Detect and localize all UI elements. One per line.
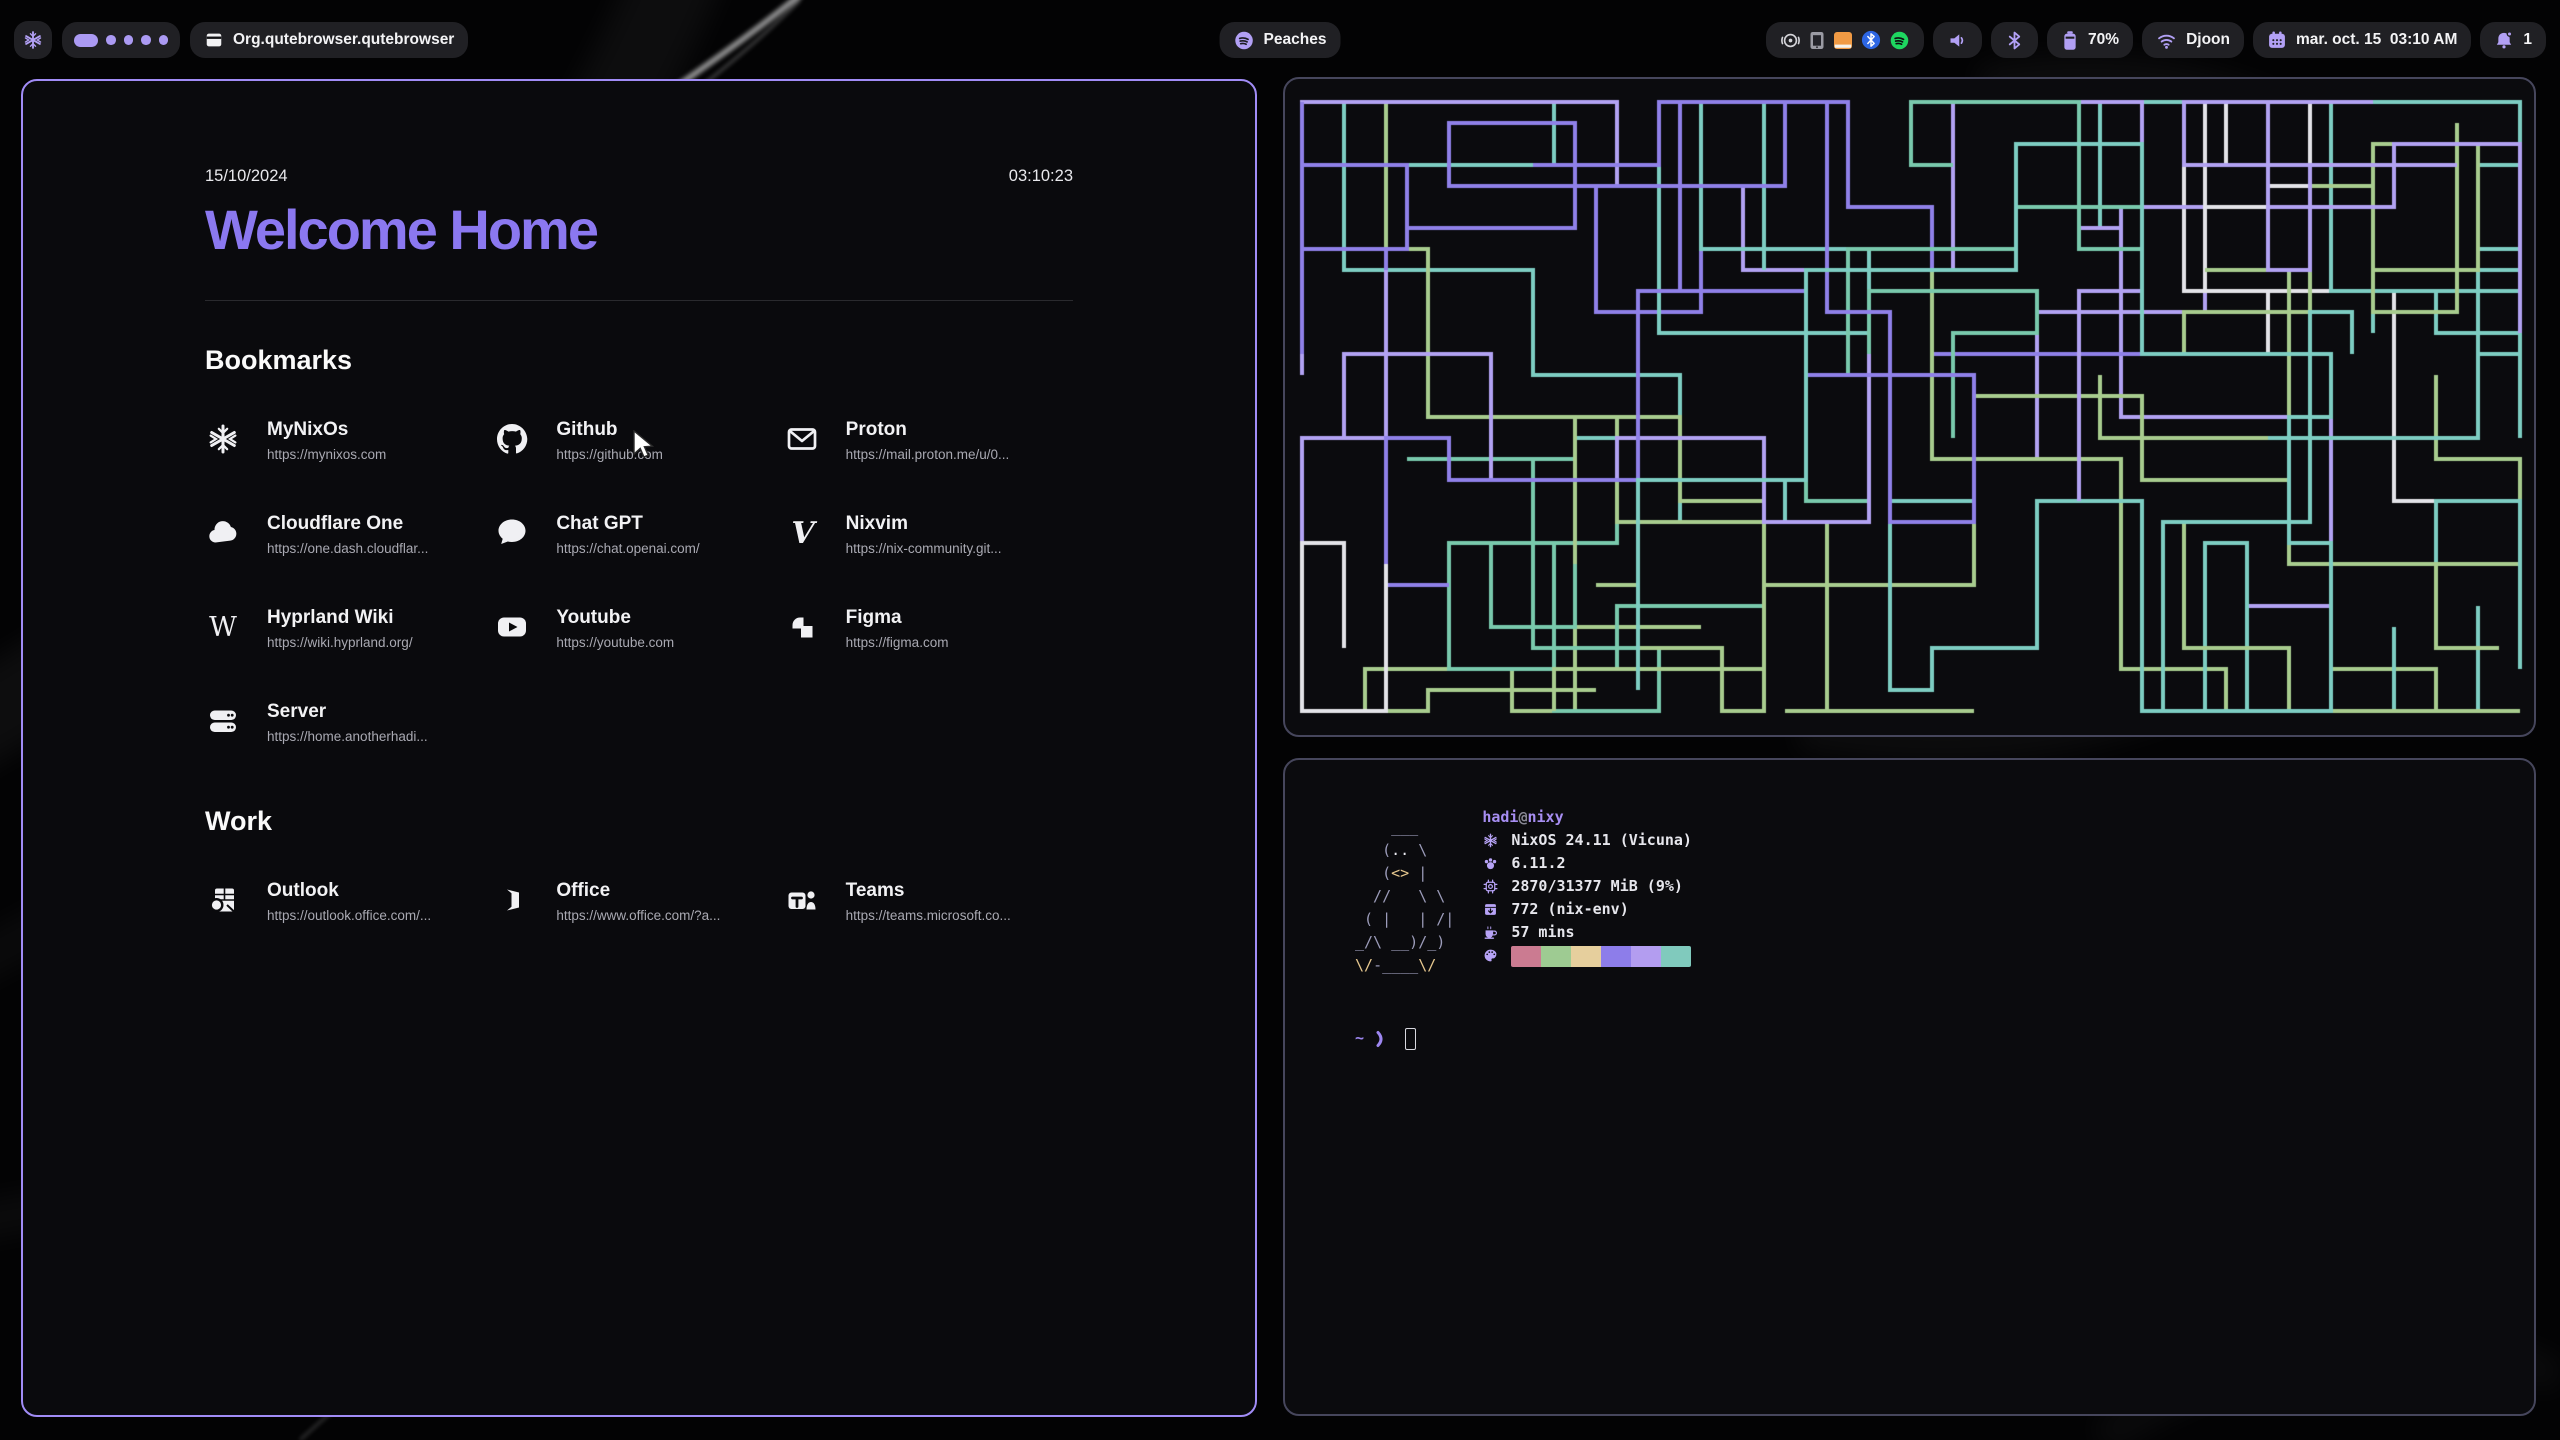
nixvim-icon: V [784,515,820,551]
clock-chip[interactable]: mar. oct. 15 03:10 AM [2253,22,2471,58]
bookmark-item[interactable]: MyNixOshttps://mynixos.com [205,418,494,474]
svg-text:W: W [209,612,237,643]
workspace-dot[interactable] [159,35,169,45]
fetch-value: 2870/31377 MiB (9%) [1511,875,1683,898]
cloud-icon [205,515,241,551]
bookmark-item[interactable]: Protonhttps://mail.proton.me/u/0... [784,418,1073,474]
ascii-line: ( | | /| [1355,908,1454,931]
bookmark-url: https://teams.microsoft.co... [846,908,1011,923]
packages-icon [1482,901,1499,918]
bookmark-item[interactable]: Cloudflare Onehttps://one.dash.cloudflar… [205,512,494,568]
notification-count: 1 [2523,31,2532,49]
fetch-row-kernel: 6.11.2 [1482,852,1692,875]
status-bar: Org.qutebrowser.qutebrowser Peaches [0,21,2560,59]
mail-icon [784,421,820,457]
bookmark-text: Serverhttps://home.anotherhadi... [267,700,428,744]
bookmark-title: Proton [846,418,1010,442]
nix-icon [205,421,241,457]
nix-icon [1482,832,1499,849]
bookmark-text: Outlookhttps://outlook.office.com/... [267,879,431,923]
bookmark-url: https://figma.com [846,635,949,650]
prompt-cwd: ~ [1355,1027,1364,1050]
color-swatches [1511,946,1691,967]
bookmark-url: https://mail.proton.me/u/0... [846,447,1010,462]
media-track-label: Peaches [1264,31,1327,49]
bookmark-title: Hyprland Wiki [267,606,413,630]
bookmark-title: Office [556,879,720,903]
ascii-line: (.. \ [1355,839,1454,862]
date-time-row: 15/10/2024 03:10:23 [205,167,1073,186]
section-heading: Work [205,806,1073,837]
tray-files-icon[interactable] [1833,31,1853,50]
calendar-icon [2267,30,2287,50]
bookmark-item[interactable]: Outlookhttps://outlook.office.com/... [205,879,494,935]
pipes-terminal-window [1283,77,2536,737]
bookmark-grid: Outlookhttps://outlook.office.com/...Off… [205,879,1073,935]
bookmark-item[interactable]: Serverhttps://home.anotherhadi... [205,700,494,756]
bookmark-text: Youtubehttps://youtube.com [556,606,674,650]
github-icon [494,421,530,457]
bookmark-url: https://www.office.com/?a... [556,908,720,923]
memory-icon [1482,878,1499,895]
bookmark-title: Cloudflare One [267,512,428,536]
bookmark-text: Hyprland Wikihttps://wiki.hyprland.org/ [267,606,413,650]
bookmark-url: https://outlook.office.com/... [267,908,431,923]
bookmark-text: Chat GPThttps://chat.openai.com/ [556,512,699,556]
ascii-art-tux: ___ (.. \ (<> | // \ \ ( | | /|_/\ __)/_… [1355,816,1454,977]
uptime-icon [1482,924,1499,941]
tray-spotify-icon[interactable] [1889,30,1910,51]
bookmark-title: Nixvim [846,512,1002,536]
pipes-art [1289,83,2534,731]
fetch-hostname: nixy [1528,806,1564,829]
workspace-dot[interactable] [124,35,134,45]
chat-icon [494,515,530,551]
svg-text:V: V [791,516,817,551]
launcher-button[interactable] [14,21,52,59]
fetch-palette-row [1482,944,1692,967]
wifi-ssid: Djoon [2186,31,2230,49]
bell-icon [2494,30,2514,50]
bookmark-title: MyNixOs [267,418,386,442]
fetch-user-host: hadi@nixy [1482,806,1692,829]
bookmark-item[interactable]: VNixvimhttps://nix-community.git... [784,512,1073,568]
bookmark-text: Figmahttps://figma.com [846,606,949,650]
bookmark-url: https://wiki.hyprland.org/ [267,635,413,650]
bookmark-item[interactable]: Figmahttps://figma.com [784,606,1073,662]
battery-percent: 70% [2088,31,2119,49]
bookmark-title: Outlook [267,879,431,903]
system-tray [1766,22,1924,58]
terminal-window[interactable]: ___ (.. \ (<> | // \ \ ( | | /|_/\ __)/_… [1283,758,2536,1416]
fetch-value: 57 mins [1511,921,1574,944]
bookmark-title: Server [267,700,428,724]
bookmark-title: Teams [846,879,1011,903]
workspaces[interactable] [62,22,180,58]
workspace-dot[interactable] [106,35,116,45]
terminal-cursor [1405,1028,1416,1050]
swatch [1661,946,1691,967]
ascii-line: (<> | [1355,862,1454,885]
fetch-row-memory: 2870/31377 MiB (9%) [1482,875,1692,898]
window-title: Org.qutebrowser.qutebrowser [233,31,454,49]
fastfetch-output: ___ (.. \ (<> | // \ \ ( | | /|_/\ __)/_… [1355,806,2504,977]
qutebrowser-window: 15/10/2024 03:10:23 Welcome Home Bookmar… [21,79,1257,1417]
swatch [1511,946,1541,967]
shell-prompt[interactable]: ~ [1355,1027,2504,1050]
bookmark-title: Chat GPT [556,512,699,536]
fetch-value: NixOS 24.11 (Vicuna) [1511,829,1692,852]
bookmark-item[interactable]: WHyprland Wikihttps://wiki.hyprland.org/ [205,606,494,662]
fetch-username: hadi [1482,806,1518,829]
swatch [1571,946,1601,967]
media-player-chip[interactable]: Peaches [1220,22,1341,58]
bookmark-text: Teamshttps://teams.microsoft.co... [846,879,1011,923]
bookmark-item[interactable]: Chat GPThttps://chat.openai.com/ [494,512,783,568]
bookmark-grid: MyNixOshttps://mynixos.comGithubhttps://… [205,418,1073,756]
ascii-line: ___ [1355,816,1454,839]
bookmark-item[interactable]: Youtubehttps://youtube.com [494,606,783,662]
divider [205,300,1073,301]
bookmark-url: https://one.dash.cloudflar... [267,541,428,556]
battery-icon [2061,30,2079,51]
page-date: 15/10/2024 [205,167,288,186]
kernel-icon [1482,855,1499,872]
network-chip[interactable]: Djoon [2142,22,2244,58]
mouse-cursor [632,430,658,460]
bookmark-text: Nixvimhttps://nix-community.git... [846,512,1002,556]
bluetooth-chip[interactable] [1991,22,2038,58]
tray-record-icon[interactable] [1780,30,1801,51]
battery-chip[interactable]: 70% [2047,22,2133,58]
workspace-dot[interactable] [141,35,151,45]
bookmark-url: https://home.anotherhadi... [267,729,428,744]
fetch-row-packages: 772 (nix-env) [1482,898,1692,921]
clock-text: mar. oct. 15 03:10 AM [2296,31,2457,49]
volume-chip[interactable] [1933,22,1982,58]
workspace-active[interactable] [74,34,98,47]
swatch [1601,946,1631,967]
bookmark-title: Figma [846,606,949,630]
tray-phone-icon[interactable] [1809,31,1825,50]
wikipedia-icon: W [205,609,241,645]
teams-icon [784,882,820,918]
wifi-icon [2156,30,2177,51]
figma-icon [784,609,820,645]
section-heading: Bookmarks [205,345,1073,376]
notifications-chip[interactable]: 1 [2480,22,2546,58]
bookmark-text: Protonhttps://mail.proton.me/u/0... [846,418,1010,462]
fetch-row-os: NixOS 24.11 (Vicuna) [1482,829,1692,852]
ascii-line: // \ \ [1355,885,1454,908]
bookmark-item[interactable]: Teamshttps://teams.microsoft.co... [784,879,1073,935]
ascii-line: _/\ __)/_) [1355,931,1454,954]
palette-icon [1482,947,1499,964]
bookmark-url: https://youtube.com [556,635,674,650]
fetch-value: 772 (nix-env) [1511,898,1628,921]
nixos-logo-icon [22,29,44,51]
server-icon [205,703,241,739]
page-time: 03:10:23 [1009,167,1073,186]
window-icon [204,30,224,50]
swatch [1541,946,1571,967]
fetch-value: 6.11.2 [1511,852,1565,875]
bluetooth-icon [2005,31,2024,50]
outlook-icon [205,882,241,918]
tray-bluetooth-icon[interactable] [1861,30,1881,50]
bookmark-url: https://nix-community.git... [846,541,1002,556]
bookmark-text: MyNixOshttps://mynixos.com [267,418,386,462]
ascii-line: \/-____\/ [1355,954,1454,977]
bookmark-url: https://mynixos.com [267,447,386,462]
bookmark-title: Youtube [556,606,674,630]
page-title: Welcome Home [205,200,1073,260]
bookmark-text: Cloudflare Onehttps://one.dash.cloudflar… [267,512,428,556]
bookmark-text: Officehttps://www.office.com/?a... [556,879,720,923]
window-title-chip: Org.qutebrowser.qutebrowser [190,22,468,58]
bookmark-item[interactable]: Officehttps://www.office.com/?a... [494,879,783,935]
office-icon [494,882,530,918]
fetch-at: @ [1518,806,1527,829]
bookmark-url: https://chat.openai.com/ [556,541,699,556]
speaker-icon [1947,30,1968,51]
prompt-chevron-icon [1374,1028,1387,1050]
youtube-icon [494,609,530,645]
spotify-icon [1234,30,1255,51]
swatch [1631,946,1661,967]
fetch-row-uptime: 57 mins [1482,921,1692,944]
